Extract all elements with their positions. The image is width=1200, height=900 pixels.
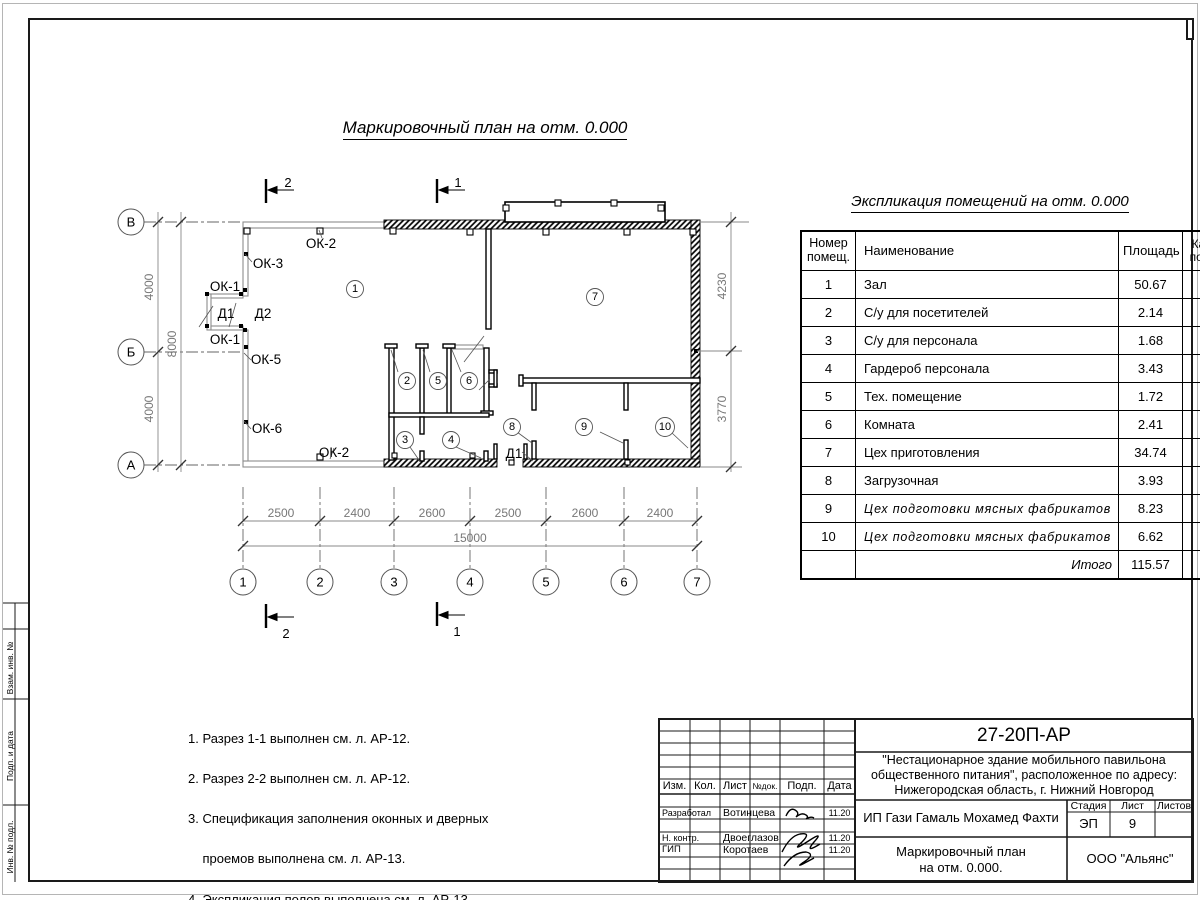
room-number-cell: 3 [801, 327, 856, 355]
room-number-cell: 10 [801, 523, 856, 551]
label-ok2-top: ОК-2 [306, 236, 336, 251]
axis-num-4: 4 [466, 575, 473, 590]
explication-table: Номер помещ. Наименование Площадь Кат. п… [800, 230, 1200, 580]
axis-num-1: 1 [239, 575, 246, 590]
stamp-role-gip: ГИП [662, 844, 719, 857]
dim-2600a: 2600 [419, 506, 446, 520]
signature-votintseva [786, 809, 814, 819]
stamp-col-kol: Кол. [690, 779, 720, 794]
room-area-cell: 8.23 [1119, 495, 1183, 523]
stamp-date-developer: 11.20 [824, 807, 855, 819]
room-cat-cell [1183, 467, 1200, 495]
room-name-cell: Цех подготовки мясных фабрикатов [856, 523, 1119, 551]
stamp-name-developer: Вотинцева [723, 807, 779, 819]
total-label: Итого [856, 551, 1119, 580]
room-num-2: 2 [404, 375, 410, 387]
room-cat-cell [1183, 383, 1200, 411]
axis-bubble-labels: В Б А 1 2 3 4 5 6 7 [127, 215, 701, 590]
room-num-7: 7 [592, 291, 598, 303]
dim-2500a: 2500 [268, 506, 295, 520]
room-cat-cell [1183, 411, 1200, 439]
stamp-col-ndok: №док. [750, 779, 780, 794]
axis-num-7: 7 [693, 575, 700, 590]
room-numbers: 1 2 3 4 5 6 7 8 9 10 [352, 283, 671, 446]
room-number-cell: 4 [801, 355, 856, 383]
dim-2400a: 2400 [344, 506, 371, 520]
label-ok2-bottom: ОК-2 [319, 445, 349, 460]
note-line: 3. Спецификация заполнения оконных и две… [188, 812, 488, 825]
table-row: 4 Гардероб персонала 3.43 [801, 355, 1200, 383]
stamp-role-ncontr: Н. контр. [662, 832, 719, 844]
dim-15000: 15000 [453, 531, 487, 545]
stamp-col-izm: Изм. [659, 779, 690, 794]
room-num-8: 8 [509, 421, 515, 433]
stamp-list-label: Лист [1110, 800, 1155, 812]
room-num-6: 6 [466, 375, 472, 387]
total-empty-cell [801, 551, 856, 580]
table-row: 10 Цех подготовки мясных фабрикатов 6.62 [801, 523, 1200, 551]
total-cat-cell [1183, 551, 1200, 580]
room-cat-cell [1183, 439, 1200, 467]
room-num-9: 9 [581, 421, 587, 433]
room-number-cell: 7 [801, 439, 856, 467]
col-header-number: Номер помещ. [801, 231, 856, 271]
room-number-cell: 2 [801, 299, 856, 327]
stamp-name-ncontr: Двоеглазов [723, 832, 781, 844]
label-d1-bottom: Д1 [506, 446, 523, 461]
dim-4000b: 4000 [142, 395, 156, 422]
stamp-listov-label: Листов [1155, 800, 1193, 812]
stamp-date-gip: 11.20 [824, 844, 855, 857]
room-num-10: 10 [659, 421, 671, 433]
label-ok6: ОК-6 [252, 421, 282, 436]
note-line: 2. Разрез 2-2 выполнен см. л. АР-12. [188, 772, 488, 785]
room-cat-cell [1183, 299, 1200, 327]
table-row: 8 Загрузочная 3.93 [801, 467, 1200, 495]
room-number-cell: 5 [801, 383, 856, 411]
label-d1: Д1 [218, 306, 235, 321]
table-row: 2 С/у для посетителей 2.14 [801, 299, 1200, 327]
stamp-col-podp: Подп. [780, 779, 824, 794]
room-area-cell: 1.68 [1119, 327, 1183, 355]
walls-thin [207, 222, 483, 467]
room-number-cell: 1 [801, 271, 856, 299]
dim-4230: 4230 [715, 272, 729, 299]
room-cat-cell [1183, 327, 1200, 355]
room-cat-cell [1183, 355, 1200, 383]
room-name-cell: Загрузочная [856, 467, 1119, 495]
note-line: 4. Экспликация полов выполнена см. л. АР… [188, 893, 488, 900]
section-1-top: 1 [454, 175, 461, 190]
table-row: 1 Зал 50.67 [801, 271, 1200, 299]
room-name-cell: С/у для посетителей [856, 299, 1119, 327]
stamp-col-list: Лист [720, 779, 750, 794]
section-2-bottom: 2 [282, 626, 289, 641]
explication-header-row: Номер помещ. Наименование Площадь Кат. п… [801, 231, 1200, 271]
label-ok1-bottom: ОК-1 [210, 332, 240, 347]
stamp-col-data: Дата [824, 779, 855, 794]
note-line: проемов выполнена см. л. АР-13. [188, 852, 488, 865]
axis-num-5: 5 [542, 575, 549, 590]
note-line: 1. Разрез 1-1 выполнен см. л. АР-12. [188, 732, 488, 745]
dim-8000: 8000 [165, 330, 179, 357]
stamp-stadia-value: ЭП [1067, 812, 1110, 837]
walls-hatched [384, 220, 700, 467]
room-area-cell: 1.72 [1119, 383, 1183, 411]
room-area-cell: 6.62 [1119, 523, 1183, 551]
axis-letter-v: В [127, 215, 136, 230]
room-num-4: 4 [448, 434, 454, 446]
stamp-doc-number: 27-20П-АР [855, 719, 1193, 752]
total-area: 115.57 [1119, 551, 1183, 580]
room-area-cell: 2.41 [1119, 411, 1183, 439]
table-row: 3 С/у для персонала 1.68 [801, 327, 1200, 355]
room-area-cell: 34.74 [1119, 439, 1183, 467]
room-name-cell: Цех приготовления [856, 439, 1119, 467]
table-row: 6 Комната 2.41 [801, 411, 1200, 439]
stamp-project-line3: Нижегородская область, г. Нижний Новгоро… [858, 783, 1190, 798]
room-name-cell: Комната [856, 411, 1119, 439]
room-area-cell: 2.14 [1119, 299, 1183, 327]
stamp-company: ООО "Альянс" [1067, 837, 1193, 882]
label-ok3: ОК-3 [253, 256, 283, 271]
loading-platform [503, 200, 665, 222]
room-name-cell: С/у для персонала [856, 327, 1119, 355]
col-header-area: Площадь [1119, 231, 1183, 271]
label-ok5: ОК-5 [251, 352, 281, 367]
room-number-cell: 8 [801, 467, 856, 495]
section-2-top: 2 [284, 175, 291, 190]
drawing-notes: 1. Разрез 1-1 выполнен см. л. АР-12. 2. … [188, 705, 488, 900]
room-num-3: 3 [402, 434, 408, 446]
axis-bubbles [118, 209, 710, 595]
stamp-sheet-title-line2: на отм. 0.000. [855, 860, 1067, 876]
stamp-name-gip: Коротаев [723, 844, 779, 857]
axis-num-3: 3 [390, 575, 397, 590]
room-name-cell: Гардероб персонала [856, 355, 1119, 383]
dim-2400b: 2400 [647, 506, 674, 520]
room-name-cell: Цех подготовки мясных фабрикатов [856, 495, 1119, 523]
margin-strip-lines [3, 603, 28, 882]
room-area-cell: 3.93 [1119, 467, 1183, 495]
stamp-project-line1: "Нестационарное здание мобильного павиль… [858, 753, 1190, 768]
stamp-role-developer: Разработал [662, 807, 719, 819]
room-area-cell: 3.43 [1119, 355, 1183, 383]
axis-num-6: 6 [620, 575, 627, 590]
room-cat-cell [1183, 495, 1200, 523]
drawing-sheet: Взам. инв. № Подп. и дата Инв. № подл. М… [0, 0, 1200, 900]
stamp-sheet-title-line1: Маркировочный план [855, 844, 1067, 860]
room-cat-cell [1183, 271, 1200, 299]
axis-num-2: 2 [316, 575, 323, 590]
col-header-name: Наименование [856, 231, 1119, 271]
table-row: 5 Тех. помещение 1.72 [801, 383, 1200, 411]
axis-letter-a: А [127, 458, 136, 473]
stamp-client: ИП Гази Гамаль Мохамед Фахти [855, 800, 1067, 837]
section-marks: 2 1 2 1 [266, 175, 465, 641]
table-total-row: Итого 115.57 [801, 551, 1200, 580]
room-number-cell: 6 [801, 411, 856, 439]
stamp-project-line2: общественного питания", расположенное по… [858, 768, 1190, 783]
signature-gip [782, 834, 820, 866]
room-name-cell: Тех. помещение [856, 383, 1119, 411]
label-ok1-top: ОК-1 [210, 279, 240, 294]
dim-2500b: 2500 [495, 506, 522, 520]
room-name-cell: Зал [856, 271, 1119, 299]
dim-2600b: 2600 [572, 506, 599, 520]
stamp-stadia-label: Стадия [1067, 800, 1110, 812]
room-area-cell: 50.67 [1119, 271, 1183, 299]
stamp-list-value: 9 [1110, 812, 1155, 837]
label-d2: Д2 [255, 306, 272, 321]
dim-4000a: 4000 [142, 273, 156, 300]
axis-letter-b: Б [127, 345, 136, 360]
room-num-1: 1 [352, 283, 358, 295]
dim-3770: 3770 [715, 395, 729, 422]
col-header-cat: Кат. пом. [1183, 231, 1200, 271]
table-row: 9 Цех подготовки мясных фабрикатов 8.23 [801, 495, 1200, 523]
walls-partitions [385, 229, 700, 461]
room-number-cell: 9 [801, 495, 856, 523]
stamp-date-ncontr: 11.20 [824, 832, 855, 844]
room-cat-cell [1183, 523, 1200, 551]
table-row: 7 Цех приготовления 34.74 [801, 439, 1200, 467]
room-num-5: 5 [435, 375, 441, 387]
section-1-bottom: 1 [453, 624, 460, 639]
